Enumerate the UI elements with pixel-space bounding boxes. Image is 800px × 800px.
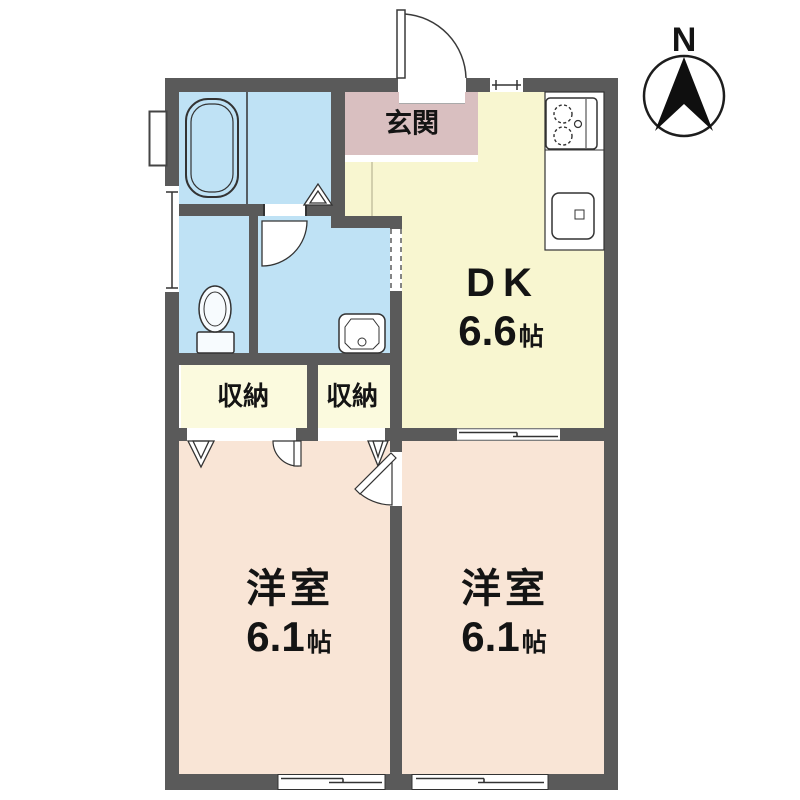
wall-right-room-top (402, 428, 457, 441)
wall-closet-top (179, 353, 402, 365)
closet-left-label: 収納 (217, 383, 269, 409)
window-west (165, 186, 179, 292)
western-room-left-label: 洋室 (246, 569, 334, 609)
closet-right-opening (318, 428, 385, 441)
wall-closet-divider (307, 365, 318, 428)
entrance-door-opening (398, 78, 466, 92)
washroom-floor (258, 216, 390, 353)
room-size-unit: 帖 (307, 631, 332, 656)
wall-east (604, 92, 618, 790)
wall-right-room-top (560, 428, 604, 441)
closet-right-label: 収納 (326, 383, 378, 409)
bathroom-door-opening (263, 204, 307, 216)
western-room-left-size: 6.1帖 (246, 616, 331, 658)
wall-toilet-divider (249, 216, 258, 353)
wall-closet-bottom-stub (179, 428, 187, 441)
dk-size-value: 6.6 (458, 310, 516, 352)
compass-north-label: N (672, 23, 697, 57)
wall-bath-entrance (331, 92, 345, 216)
dk-label: DK (466, 263, 540, 303)
room-size-value: 6.1 (246, 616, 304, 658)
exterior-box (150, 112, 167, 166)
wall-washroom-top-right (331, 216, 402, 228)
western-room-right-size: 6.1帖 (461, 616, 546, 658)
dk-size-unit: 帖 (519, 325, 544, 350)
floorplan-canvas: N 玄関 DK 6.6帖 収納 収納 洋室 6.1帖 洋室 6.1帖 (0, 0, 800, 800)
toilet-floor (179, 216, 249, 353)
room-size-unit: 帖 (522, 631, 547, 656)
wall-closet-bottom-stub (296, 428, 318, 441)
bathroom-floor (179, 92, 331, 204)
dk-floor (478, 92, 604, 428)
wall-north (165, 78, 618, 92)
washroom-dk-opening (390, 229, 402, 291)
wall-bath-bottom (179, 204, 331, 216)
sliding-door-dk-room (457, 428, 560, 441)
closet-left-opening (187, 428, 296, 441)
dk-hall-floor (345, 162, 402, 216)
entrance-door-sill (399, 92, 465, 104)
wall-south (179, 774, 604, 790)
entrance-door-icon (397, 10, 466, 78)
room-size-value: 6.1 (461, 616, 519, 658)
western-room-right-label: 洋室 (461, 569, 549, 609)
entrance-label: 玄関 (385, 111, 439, 138)
wall-closet-bottom-stub (385, 428, 402, 441)
dk-size-label: 6.6帖 (458, 310, 543, 352)
rooms-door-opening (390, 452, 402, 506)
compass-icon (644, 56, 724, 136)
window-north (490, 78, 523, 92)
